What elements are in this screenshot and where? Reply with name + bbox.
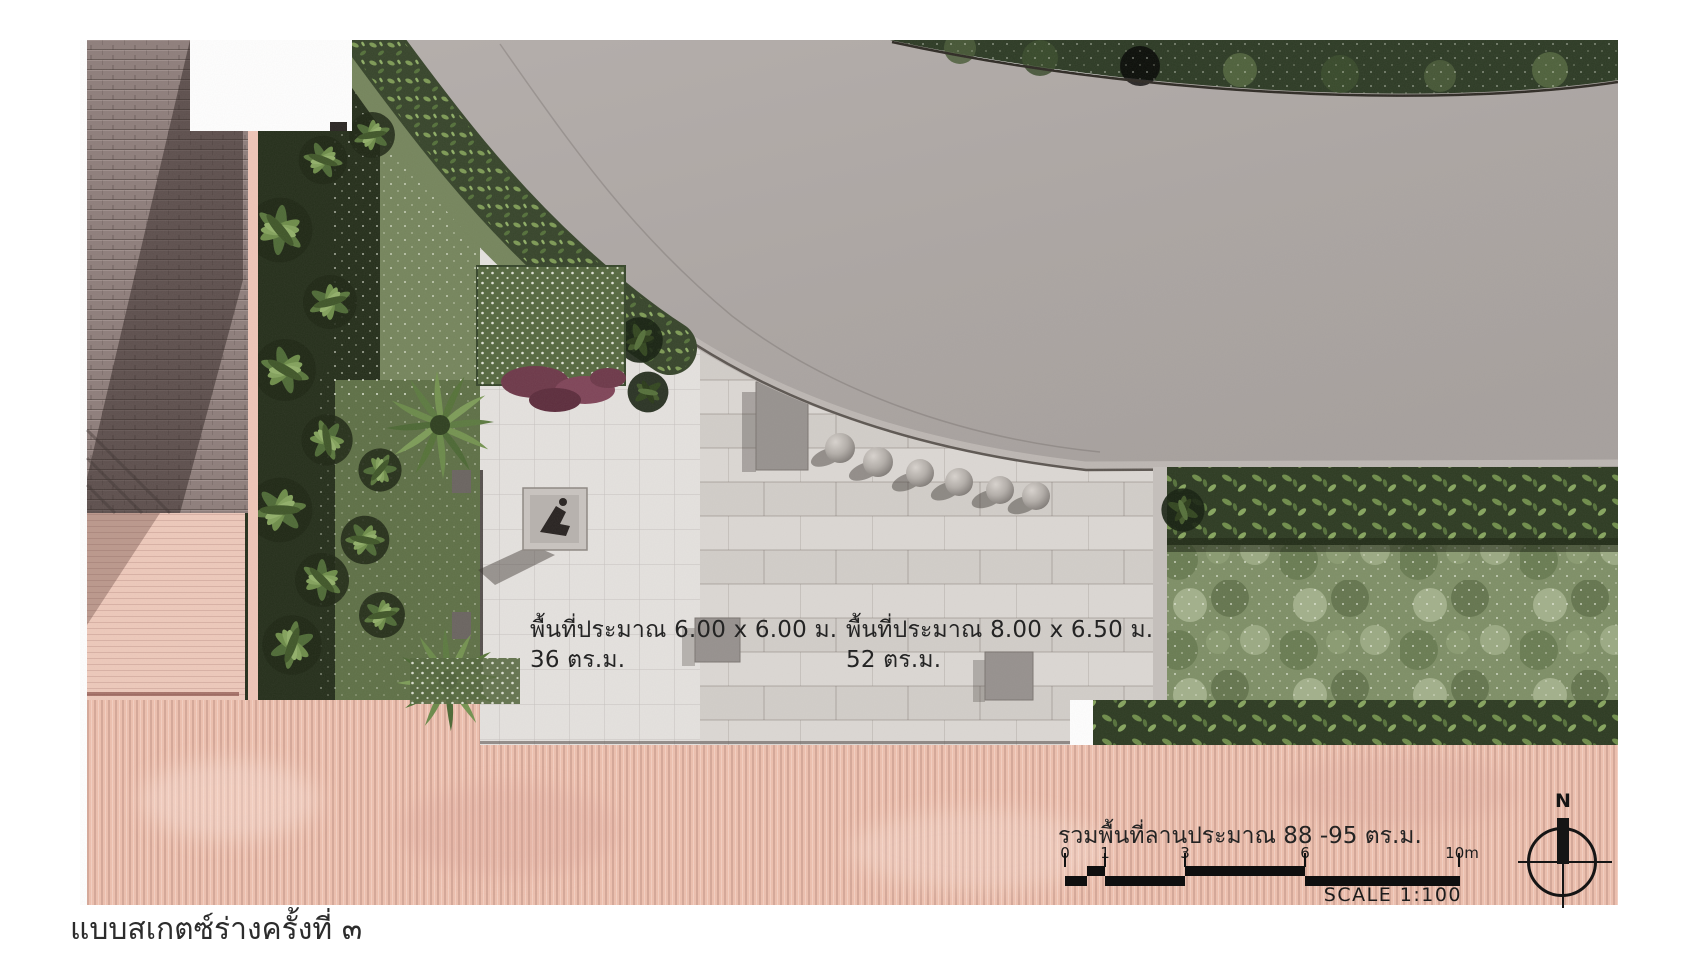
scale-tick-mark [1064, 853, 1066, 867]
total-area-label: รวมพื้นที่ลานประมาณ 88 -95 ตร.ม. [1058, 818, 1422, 854]
scale-bar-segment [1185, 866, 1305, 876]
page: พื้นที่ประมาณ 6.00 x 6.00 ม. 36 ตร.ม. พื… [0, 0, 1706, 960]
area-label-plaza-2: พื้นที่ประมาณ 8.00 x 6.50 ม. 52 ตร.ม. [846, 615, 1153, 675]
scale-bar-segment [1087, 866, 1105, 876]
scale-bar-segment [1065, 876, 1087, 886]
north-label: N [1555, 790, 1571, 812]
scale-tick-label: 10m [1445, 844, 1479, 862]
drawing-caption: แบบสเกตซ์ร่างครั้งที่ ๓ [70, 906, 362, 953]
area-label-dimensions: พื้นที่ประมาณ 8.00 x 6.50 ม. [846, 615, 1153, 645]
scale-tick-mark [1458, 853, 1460, 867]
area-label-plaza-1: พื้นที่ประมาณ 6.00 x 6.00 ม. 36 ตร.ม. [530, 615, 837, 675]
scale-tick-mark [1304, 853, 1306, 867]
area-label-sqm: 52 ตร.ม. [846, 645, 1153, 675]
scale-ratio-label: SCALE 1:100 [1252, 884, 1462, 906]
scale-tick-mark [1184, 853, 1186, 867]
scale-tick-mark [1104, 853, 1106, 867]
area-label-sqm: 36 ตร.ม. [530, 645, 837, 675]
scale-bar-segment [1105, 876, 1185, 886]
site-plan-rendering [80, 40, 1618, 905]
compass-north-pointer [1557, 818, 1569, 864]
area-label-dimensions: พื้นที่ประมาณ 6.00 x 6.00 ม. [530, 615, 837, 645]
